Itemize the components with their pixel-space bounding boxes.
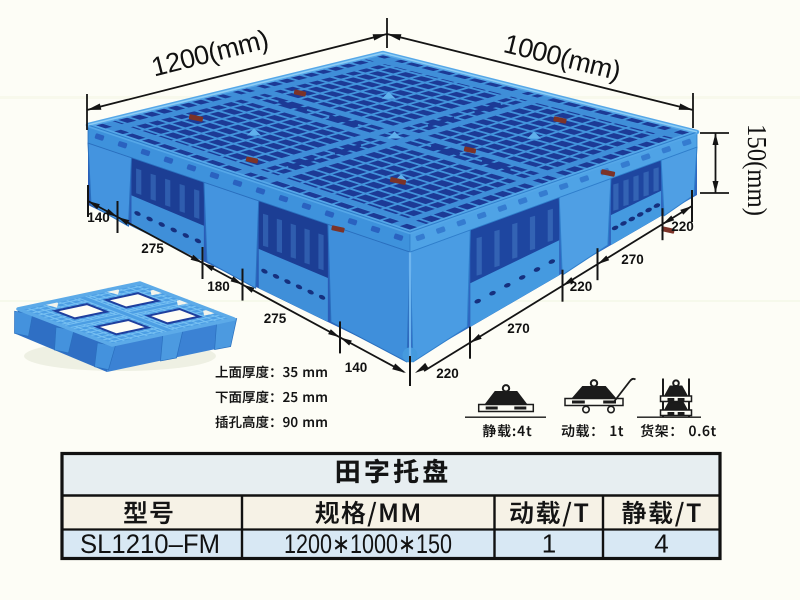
svg-text:275: 275	[141, 241, 164, 256]
svg-text:220: 220	[436, 366, 459, 381]
svg-text:140: 140	[345, 360, 368, 375]
svg-text:SL1210–FM: SL1210–FM	[80, 529, 220, 559]
svg-text:140: 140	[87, 210, 110, 225]
svg-text:1200∗1000∗150: 1200∗1000∗150	[284, 529, 452, 559]
svg-text:4: 4	[654, 529, 668, 559]
svg-text:275: 275	[264, 311, 287, 326]
svg-text:220: 220	[570, 279, 593, 294]
svg-text:220: 220	[671, 219, 694, 234]
svg-text:270: 270	[621, 252, 644, 267]
svg-text:270: 270	[507, 321, 530, 336]
svg-text:150(mm): 150(mm)	[742, 124, 772, 216]
svg-text:180: 180	[207, 279, 230, 294]
svg-text:1: 1	[542, 529, 556, 559]
